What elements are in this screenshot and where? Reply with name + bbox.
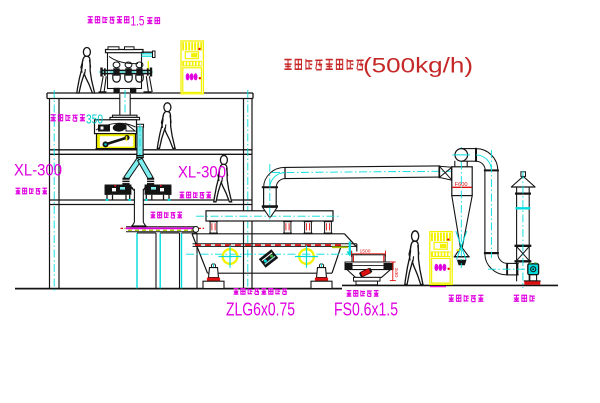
svg-text:340: 340 <box>393 268 399 278</box>
svg-text:1500: 1500 <box>360 249 371 255</box>
svg-text:350: 350 <box>86 113 103 127</box>
svg-text:(500kg/h): (500kg/h) <box>363 54 473 78</box>
svg-text:XL-300: XL-300 <box>178 164 226 182</box>
svg-text:FS0.6x1.5: FS0.6x1.5 <box>334 299 398 320</box>
svg-text:XL-300: XL-300 <box>14 162 62 180</box>
svg-text:1.5: 1.5 <box>131 14 145 29</box>
svg-text:ZLG6x0.75: ZLG6x0.75 <box>226 299 295 320</box>
